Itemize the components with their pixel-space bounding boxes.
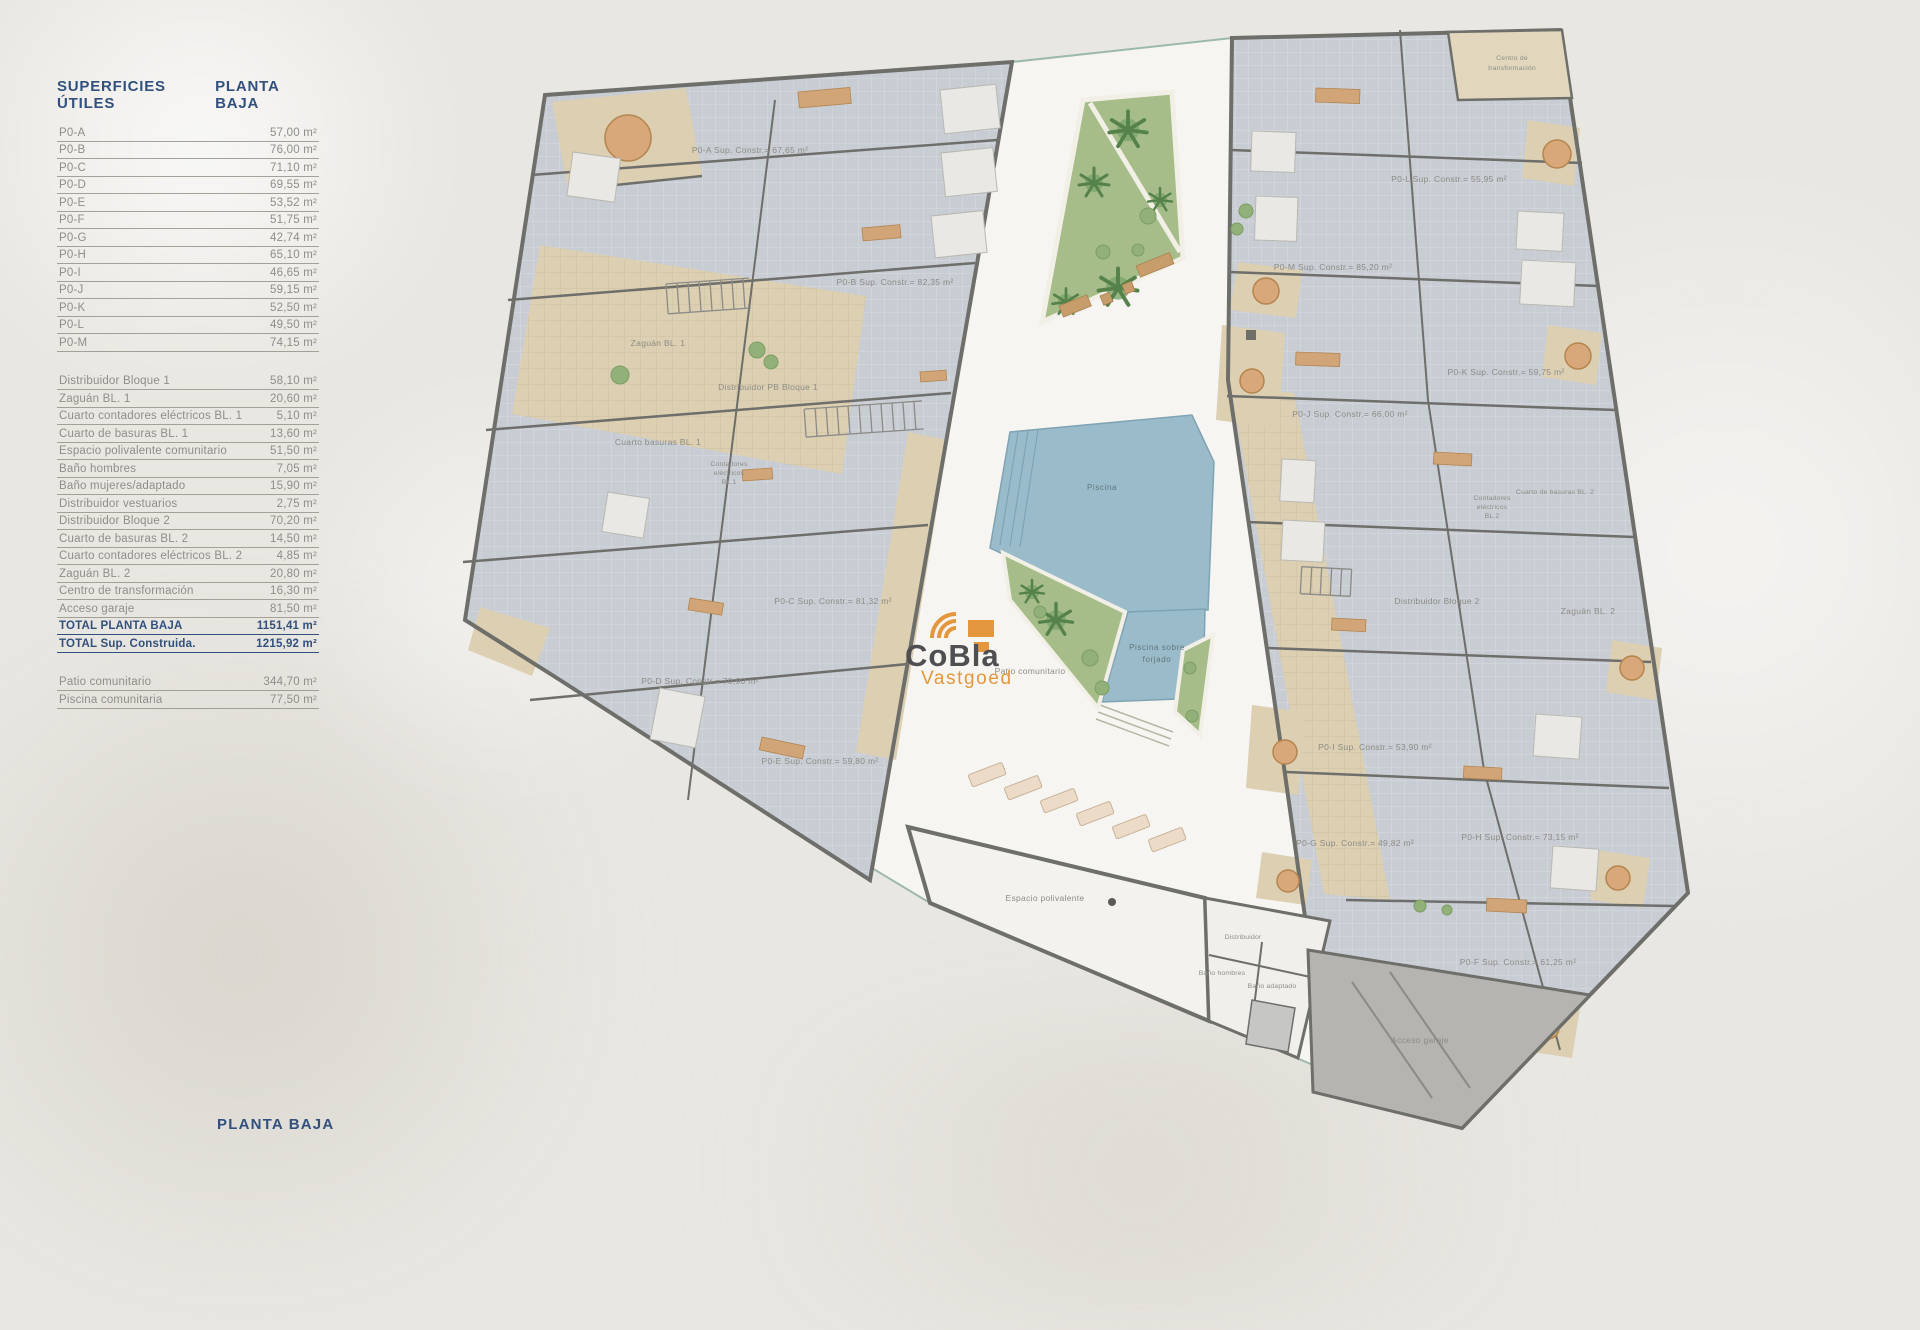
room-label-p0c: P0-C Sup. Constr.= 81,32 m² [774,596,891,606]
room-label-centro: transformación [1488,65,1536,72]
room-label-zaguan1: Zaguán BL. 1 [631,338,686,348]
room-label-contadores2: Contadores [1473,495,1511,502]
room-label-distribuidor2: Distribuidor Bloque 2 [1394,596,1479,606]
room-label-centro: Centro de [1496,55,1528,62]
room-label-contadores1: BL.1 [722,479,737,486]
room-label-p0f: P0-F Sup. Constr.= 61,25 m² [1460,957,1577,967]
room-label-p0m: P0-M Sup. Constr.= 85,20 m² [1274,262,1392,272]
column-icon [1108,898,1116,906]
garage-label: Acceso garaje [1391,1035,1449,1045]
room-label-p0i: P0-I Sup. Constr.= 53,90 m² [1318,742,1432,752]
grill-icon [1246,330,1256,340]
room-label-p0b: P0-B Sup. Constr.= 82,35 m² [836,277,953,287]
distribuidor-label: Distribuidor [1225,934,1262,941]
room-label-p0j: P0-J Sup. Constr.= 66,00 m² [1292,409,1408,419]
logo-block-icon [968,620,994,637]
room-label-basuras2: Cuarto de basuras BL. 2 [1516,489,1594,496]
room-label-basuras1: Cuarto basuras BL. 1 [615,437,701,447]
room-label-p0l: P0-L Sup. Constr.= 55,95 m² [1391,174,1507,184]
pool-label: Piscina [1087,483,1117,492]
room-label-p0e: P0-E Sup. Constr.= 59,80 m² [761,756,878,766]
bano-hombres-label: Baño hombres [1199,970,1246,977]
floorplan-svg: P0-A Sup. Constr.= 67,65 m² P0-B Sup. Co… [0,0,1920,1280]
terrace-table [605,115,651,161]
pool-forjado-label: forjado [1143,655,1172,664]
room-label-contadores2: eléctricos [1477,504,1508,511]
espacio-label: Espacio polivalente [1006,893,1085,903]
room-label-p0h: P0-H Sup. Constr.= 73,15 m² [1461,832,1578,842]
room-label-zaguan2: Zaguán BL. 2 [1561,606,1616,616]
room-label-p0g: P0-G Sup. Constr.= 49,82 m² [1296,838,1414,848]
room-label-p0d: P0-D Sup. Constr.= 70,90 m² [641,676,758,686]
room-label-contadores2: BL.2 [1485,513,1500,520]
bano-adaptado-label: Baño adaptado [1248,983,1297,990]
room-label-contadores1: eléctricos [714,470,745,477]
room-label-p0k: P0-K Sup. Constr.= 59,75 m² [1447,367,1564,377]
room-label-contadores1: Contadores [710,461,748,468]
room-label-distribuidor1: Distribuidor PB Bloque 1 [718,382,818,392]
room-label-p0a: P0-A Sup. Constr.= 67,65 m² [692,145,809,155]
pool-forjado-label: Piscina sobre [1129,643,1185,652]
logo-sub-text: Vastgoed [921,668,1013,689]
